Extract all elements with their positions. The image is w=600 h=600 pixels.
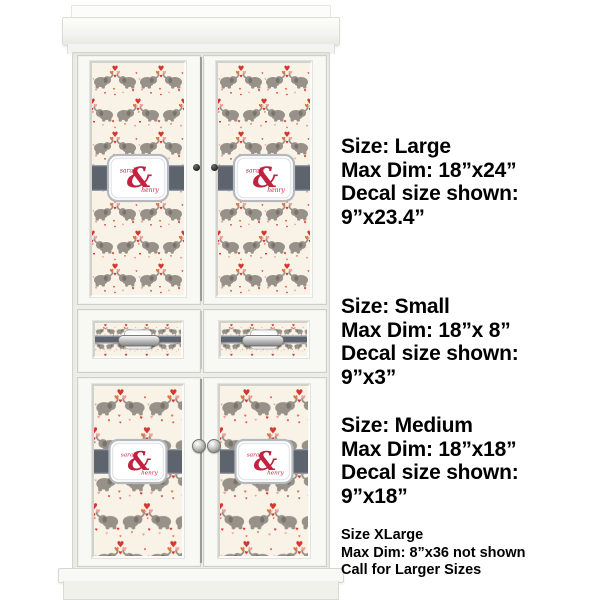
size-block-medium: Size: Medium Max Dim: 18”x18” Decal size… <box>341 414 519 508</box>
max-dim: Max Dim: 18”x 8” <box>341 319 519 343</box>
lower-left-door: ♥♥♥♥♥♥♥♥♥♥♥♥♥♥♥♥♥♥♥♥♥♥♥♥♥♥♥♥sarahhenry& <box>77 377 201 567</box>
size-label: Size: Large <box>341 135 519 159</box>
upper-left-door: ♥♥♥♥♥♥♥♥♥♥♥♥♥♥♥♥♥♥♥♥♥♥♥♥♥♥♥♥sarahhenry& <box>77 55 201 305</box>
size-info-panel: Size: Large Max Dim: 18”x24” Decal size … <box>341 0 600 600</box>
upper-doors-gap <box>200 57 202 301</box>
upper-right-door-panel: ♥♥♥♥♥♥♥♥♥♥♥♥♥♥♥♥♥♥♥♥♥♥♥♥♥♥♥♥sarahhenry& <box>216 61 312 297</box>
lower-right-door-knob <box>207 439 221 453</box>
lower-doors-gap <box>200 379 202 563</box>
lower-left-door-panel: ♥♥♥♥♥♥♥♥♥♥♥♥♥♥♥♥♥♥♥♥♥♥♥♥♥♥♥♥sarahhenry& <box>92 384 184 558</box>
xlarge-call-note: Call for Larger Sizes <box>341 562 526 580</box>
size-block-large: Size: Large Max Dim: 18”x24” Decal size … <box>341 135 519 229</box>
decal-large-right: ♥♥♥♥♥♥♥♥♥♥♥♥♥♥♥♥♥♥♥♥♥♥♥♥♥♥♥♥sarahhenry& <box>218 63 310 295</box>
shown-label: Decal size shown: <box>341 342 519 366</box>
decal-large-left: ♥♥♥♥♥♥♥♥♥♥♥♥♥♥♥♥♥♥♥♥♥♥♥♥♥♥♥♥sarahhenry& <box>92 63 184 295</box>
max-dim: Max Dim: 18”x24” <box>341 159 519 183</box>
shown-value: 9”x23.4” <box>341 206 519 230</box>
lower-right-door-panel: ♥♥♥♥♥♥♥♥♥♥♥♥♥♥♥♥♥♥♥♥♥♥♥♥♥♥♥♥sarahhenry& <box>218 384 310 558</box>
upper-right-door-knob <box>211 164 218 171</box>
right-drawer-handle <box>242 335 284 346</box>
svg-text:&: & <box>254 447 278 477</box>
svg-text:&: & <box>127 161 152 194</box>
upper-left-door-panel: ♥♥♥♥♥♥♥♥♥♥♥♥♥♥♥♥♥♥♥♥♥♥♥♥♥♥♥♥sarahhenry& <box>90 61 186 297</box>
shown-value: 9”x3” <box>341 366 519 390</box>
size-label: Size: Medium <box>341 414 519 438</box>
decal-medium-right: ♥♥♥♥♥♥♥♥♥♥♥♥♥♥♥♥♥♥♥♥♥♥♥♥♥♥♥♥sarahhenry& <box>220 386 308 556</box>
xlarge-size-label: Size XLarge <box>341 527 526 545</box>
lower-left-door-knob <box>192 439 206 453</box>
decal-medium-left: ♥♥♥♥♥♥♥♥♥♥♥♥♥♥♥♥♥♥♥♥♥♥♥♥♥♥♥♥sarahhenry& <box>94 386 182 556</box>
size-block-xlarge: Size XLarge Max Dim: 8”x36 not shown Cal… <box>341 527 526 580</box>
lower-right-door: ♥♥♥♥♥♥♥♥♥♥♥♥♥♥♥♥♥♥♥♥♥♥♥♥♥♥♥♥sarahhenry& <box>203 377 327 567</box>
cabinet-plinth-base <box>63 581 339 600</box>
svg-text:&: & <box>128 447 152 477</box>
size-block-small: Size: Small Max Dim: 18”x 8” Decal size … <box>341 295 519 389</box>
max-dim: Max Dim: 18”x18” <box>341 438 519 462</box>
shown-label: Decal size shown: <box>341 182 519 206</box>
drawers-gap <box>200 311 202 369</box>
xlarge-max-dim: Max Dim: 8”x36 not shown <box>341 545 526 563</box>
left-drawer-handle <box>118 335 160 346</box>
shown-value: 9”x18” <box>341 485 519 509</box>
svg-text:&: & <box>253 161 278 194</box>
upper-left-door-knob <box>193 164 200 171</box>
upper-right-door: ♥♥♥♥♥♥♥♥♥♥♥♥♥♥♥♥♥♥♥♥♥♥♥♥♥♥♥♥sarahhenry& <box>203 55 327 305</box>
product-size-preview: ♥♥♥♥♥♥♥♥♥♥♥♥♥♥♥♥♥♥♥♥♥♥♥♥♥♥♥♥sarahhenry& … <box>0 0 600 600</box>
shown-label: Decal size shown: <box>341 461 519 485</box>
cabinet-crown-molding <box>62 17 340 46</box>
size-label: Size: Small <box>341 295 519 319</box>
